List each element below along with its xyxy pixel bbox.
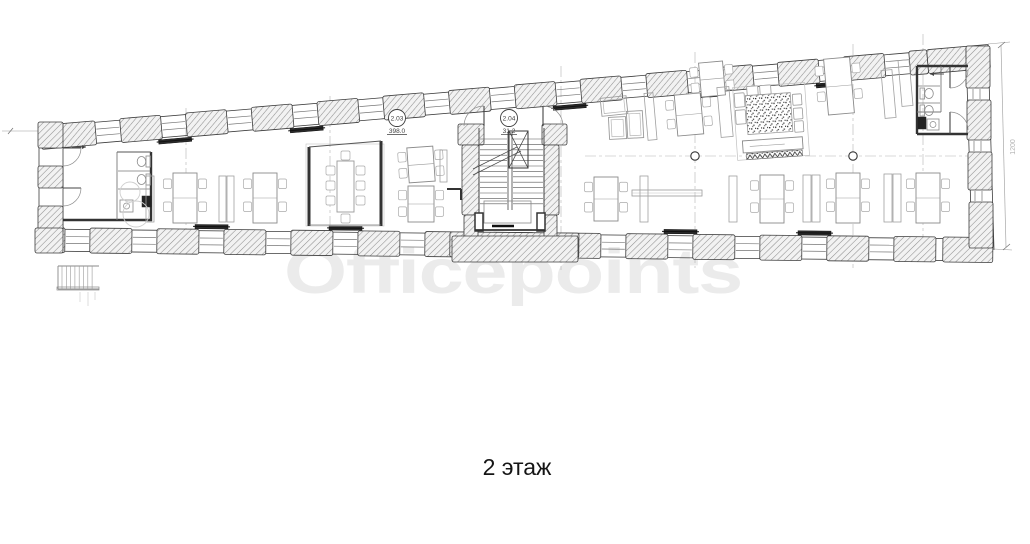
stair-landing: [484, 201, 531, 223]
wall-pier: [967, 100, 991, 140]
chair: [786, 203, 794, 213]
wall-pier: [38, 166, 63, 188]
chair: [862, 202, 870, 212]
chair: [199, 179, 207, 189]
landing-jamb: [475, 213, 483, 231]
sink: [927, 119, 939, 130]
wall-pier: [291, 230, 333, 255]
right-wall: [966, 44, 994, 250]
corner-pier: [966, 46, 990, 88]
toilet-bowl: [925, 89, 934, 99]
chair: [399, 207, 407, 217]
cabinet: [644, 93, 657, 141]
toilet-bowl: [925, 106, 934, 116]
room-number: 2.04: [503, 116, 516, 123]
window-line: [97, 134, 120, 136]
conference-table: [337, 161, 354, 212]
chair: [341, 214, 350, 223]
dimension-line: [1001, 45, 1006, 247]
door-arc: [63, 148, 81, 166]
wall-pier: [760, 235, 802, 260]
chair: [827, 202, 835, 212]
window-line: [886, 66, 909, 68]
sofa: [626, 111, 643, 139]
landing-jamb: [537, 213, 545, 231]
window-line: [294, 110, 317, 112]
cabinet-body: [812, 175, 820, 222]
window-line: [359, 105, 382, 107]
toilet-bowl: [137, 175, 146, 185]
cabinet-body: [729, 176, 737, 222]
wall-pier: [38, 206, 63, 230]
chair: [704, 116, 713, 126]
lounge-seat: [747, 86, 759, 96]
wall-pier: [777, 59, 820, 86]
wc-right: [917, 66, 968, 134]
chair: [907, 202, 915, 212]
chair: [399, 190, 407, 200]
window-line: [162, 122, 185, 124]
desk-cluster: [827, 173, 870, 223]
cabinet: [219, 176, 226, 222]
chair: [815, 66, 824, 76]
desk-cluster: [164, 173, 207, 223]
extension-line: [988, 42, 1010, 44]
window-line: [755, 77, 778, 79]
chair: [942, 179, 950, 189]
floor-caption: 2 этаж: [483, 454, 552, 480]
wall-pier: [251, 104, 294, 131]
wall-pier: [224, 229, 266, 254]
cabinet: [227, 176, 234, 222]
dimension-label: 1200: [1010, 139, 1017, 155]
wall-pier: [317, 98, 360, 125]
cabinet: [812, 175, 820, 222]
stair-wall: [544, 215, 557, 239]
wall-pier: [358, 231, 400, 256]
room-area: 398.0: [389, 128, 406, 135]
chair: [702, 97, 711, 107]
lounge-area: [733, 83, 810, 161]
chair: [341, 151, 350, 160]
chair: [751, 203, 759, 213]
toilet-tank: [920, 88, 925, 99]
chair: [326, 181, 335, 190]
cabinet: [884, 174, 892, 222]
toilet-tank: [920, 105, 925, 116]
door-arc: [63, 188, 81, 206]
cabinet: [893, 174, 901, 222]
chair: [751, 181, 759, 191]
exterior-stair: [57, 266, 99, 306]
window-line: [360, 111, 383, 113]
wall-pier: [909, 50, 929, 75]
wall-pier: [968, 152, 992, 190]
toilet-bowl: [137, 157, 146, 167]
stair-lobby-pier: [542, 124, 567, 145]
desk-cluster: [585, 177, 628, 221]
speckled-rug: [745, 93, 793, 135]
window-line: [426, 106, 449, 108]
window-line: [623, 89, 646, 91]
sink-basin: [930, 122, 936, 128]
chair: [852, 63, 861, 73]
chair: [435, 150, 444, 160]
lounge-seat: [735, 110, 746, 125]
desk-cluster: [244, 173, 287, 223]
cabinet-body: [893, 174, 901, 222]
window-line: [228, 122, 251, 124]
sofa-cushion: [611, 119, 624, 137]
chair: [726, 80, 735, 90]
stair-lobby-pier: [458, 124, 484, 145]
wall-pier: [894, 236, 936, 261]
desk-cluster: [399, 186, 444, 222]
sofa: [608, 117, 626, 140]
window-line: [163, 128, 186, 130]
floor-plan-drawing: Officepoints 2.03 398.0 2.04 31.2 1200 2…: [0, 0, 1030, 544]
dimension-tick: [1003, 244, 1010, 250]
chair: [356, 196, 365, 205]
chair: [942, 202, 950, 212]
window-line: [557, 88, 580, 90]
chair: [326, 196, 335, 205]
chair: [585, 182, 593, 192]
cabinet-body: [884, 174, 892, 222]
cabinet-body: [644, 93, 657, 141]
chair: [620, 203, 628, 213]
wall-pier: [185, 110, 228, 137]
corner-pier: [969, 202, 993, 248]
stair-core-base: [452, 236, 578, 262]
window-line: [425, 99, 448, 101]
column: [849, 152, 857, 160]
cabinet: [729, 176, 737, 222]
cabinet: [640, 176, 648, 222]
cabinet-body: [219, 176, 226, 222]
window-line: [96, 127, 119, 129]
chair: [326, 166, 335, 175]
chair: [854, 89, 863, 99]
wall-pier: [120, 115, 163, 142]
chair: [164, 179, 172, 189]
chair: [665, 100, 674, 110]
corner-pier: [35, 228, 63, 253]
window-line: [754, 71, 777, 73]
cabinet-body: [640, 176, 648, 222]
floor-plan-page: Officepoints 2.03 398.0 2.04 31.2 1200 2…: [0, 0, 1030, 544]
meeting-room: [306, 141, 384, 226]
desk-cluster: [665, 92, 713, 137]
lounge-seat: [760, 85, 772, 95]
chair: [356, 181, 365, 190]
chair: [689, 67, 698, 77]
chair: [279, 179, 287, 189]
chair: [907, 179, 915, 189]
wall-pier: [514, 81, 557, 108]
window-line: [228, 116, 251, 118]
wall-pier: [827, 236, 869, 261]
chair: [585, 203, 593, 213]
room-area: 31.2: [503, 128, 516, 135]
stair-wall: [544, 145, 559, 215]
sofa-cushion: [629, 113, 641, 136]
desk-cluster: [397, 145, 444, 183]
window-line: [492, 100, 515, 102]
window-line: [294, 117, 317, 119]
chair: [436, 207, 444, 217]
lounge-seat: [793, 108, 803, 120]
door-arc: [950, 112, 968, 130]
window-line: [491, 93, 514, 95]
chair: [786, 181, 794, 191]
chair: [244, 202, 252, 212]
chair: [620, 182, 628, 192]
counter-hatch: [746, 150, 802, 160]
counter-line: [750, 144, 785, 146]
plant: [123, 201, 149, 227]
room-label-2-03: 2.03 398.0: [387, 110, 407, 136]
wall-pier: [626, 234, 668, 259]
service-shaft: [142, 196, 151, 207]
wall-pier: [90, 228, 132, 253]
lounge-seat: [734, 93, 745, 108]
chair: [817, 92, 826, 102]
chair: [244, 179, 252, 189]
chair: [399, 168, 408, 178]
plant: [120, 182, 140, 202]
chair: [199, 202, 207, 212]
chair: [164, 202, 172, 212]
stair-wall: [462, 145, 479, 215]
chair: [667, 119, 676, 129]
lounge-seat: [792, 94, 802, 106]
desk-cluster: [751, 175, 794, 223]
cabinet-body: [227, 176, 234, 222]
room-label-2-04: 2.04 31.2: [501, 110, 518, 136]
door-arc: [950, 70, 968, 88]
window-line: [622, 82, 645, 84]
column: [691, 152, 699, 160]
stair-base: [57, 287, 99, 290]
desk-cluster: [907, 173, 950, 223]
chair: [827, 179, 835, 189]
wall-pier: [448, 87, 491, 114]
wall-pier: [38, 122, 63, 148]
chair: [691, 83, 700, 93]
lounge-seat: [794, 121, 804, 133]
wall-pier: [157, 229, 199, 254]
chair: [356, 166, 365, 175]
room-number: 2.03: [391, 116, 404, 123]
chair: [279, 202, 287, 212]
chair: [724, 64, 733, 74]
service-shaft: [918, 117, 926, 129]
chair: [862, 179, 870, 189]
chair: [398, 152, 407, 162]
cabinet-body: [803, 175, 811, 222]
wall-pier: [646, 70, 689, 97]
chair: [436, 190, 444, 200]
wc-left: [63, 145, 152, 221]
wall-pier: [693, 234, 735, 259]
cabinet: [803, 175, 811, 222]
